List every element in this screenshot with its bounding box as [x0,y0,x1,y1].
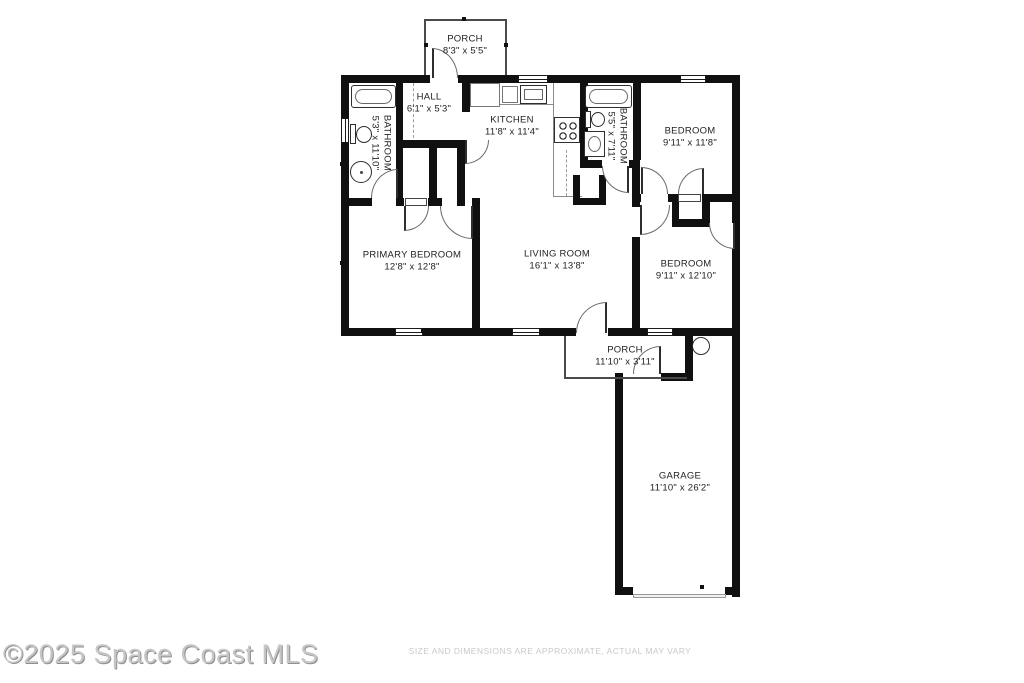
dimension-tick [543,329,547,333]
room-dims: 5'5" x 7'11" [604,108,616,164]
wall [429,148,437,198]
bathtub-icon [585,85,632,108]
dimension-tick [424,43,428,47]
wall [396,198,404,206]
dimension-tick [610,329,614,333]
wall [462,75,470,112]
dimension-tick [700,585,704,589]
room-label-garage: GARAGE 11'10" x 26'2" [650,471,710,496]
disclaimer-text: SIZE AND DIMENSIONS ARE APPROXIMATE, ACT… [409,646,692,656]
dimension-tick [421,329,425,333]
room-name: PRIMARY BEDROOM [363,250,461,262]
wall [673,328,740,336]
closet-door-slab [678,194,701,202]
cabinet-dashed-line [566,150,568,196]
window [518,75,548,83]
porch-outline [564,377,687,379]
room-name: PORCH [443,34,487,46]
bathtub-icon [351,85,396,108]
door-swing-bathroom-left [371,169,398,198]
dimension-tick [597,77,601,81]
room-dims: 11'8" x 11'4" [485,127,539,139]
room-dims: 16'1" x 13'8" [524,261,590,273]
wall [615,587,633,595]
porch-outline [505,19,507,75]
room-name: HALL [407,92,451,104]
wall [341,328,395,336]
wall [341,75,430,83]
door-swing-hall-closet [465,140,489,164]
wall [633,194,641,202]
room-label-bedroom-top-right: BEDROOM 9'11" x 11'8" [663,126,717,151]
dimension-tick [504,43,508,47]
kitchen-sink-icon [520,85,547,104]
porch-outline [424,19,426,75]
dimension-tick [651,77,655,81]
room-name: BEDROOM [663,126,717,138]
garage-door [633,594,726,598]
room-label-primary-bedroom: PRIMARY BEDROOM 12'8" x 12'8" [363,250,461,275]
room-dims: 6'1" x 5'3" [407,104,451,116]
dimension-tick [472,263,476,267]
window [647,328,673,336]
room-label-bedroom-bottom-right: BEDROOM 9'11" x 12'10" [656,259,716,284]
room-name: GARAGE [650,471,710,483]
dimension-tick [369,77,373,81]
room-dims: 9'11" x 11'8" [663,138,717,150]
window [512,328,540,336]
room-name: PORCH [595,345,654,357]
wall [403,140,465,148]
room-dims: 11'10" x 3'11" [595,357,654,369]
room-dims: 12'8" x 12'8" [363,262,461,274]
wall [672,219,710,227]
closet-door-slab [405,198,427,206]
wall [548,75,680,83]
window [395,328,423,336]
wall [706,75,740,83]
wall [341,143,349,336]
floor-plan-canvas: PORCH 8'3" x 5'5" HALL 6'1" x 5'3" KITCH… [0,0,1024,683]
room-name: KITCHEN [485,115,539,127]
wall [702,194,740,202]
wall [428,198,442,206]
door-swing-bedroom-top-closet [678,168,704,194]
wall [732,83,740,328]
wall [457,140,465,206]
stove-icon [554,117,580,143]
wall [633,83,641,160]
window [680,75,706,83]
wall [615,373,623,595]
door-swing-bedroom-bottom-closet [709,223,735,249]
room-dims: 9'11" x 12'10" [656,271,716,283]
room-label-hall: HALL 6'1" x 5'3" [407,92,451,117]
room-dims: 8'3" x 5'5" [443,46,487,58]
room-label-porch-top: PORCH 8'3" x 5'5" [443,34,487,59]
door-swing-bathroom-middle [602,166,629,193]
dimension-tick [340,261,344,265]
room-dims: 5'3" x 11'10" [368,115,380,171]
room-name: LIVING ROOM [524,249,590,261]
mls-watermark: ©2025 Space Coast MLS [3,639,319,670]
door-swing-primary-closet [404,206,429,231]
room-label-bathroom-left: BATHROOM 5'3" x 11'10" [368,115,393,171]
wall [349,198,372,206]
door-swing-primary-entry [440,206,473,239]
window [341,118,349,143]
room-name: BATHROOM [380,115,392,171]
wall [732,328,740,597]
water-heater-icon [692,337,710,355]
room-label-kitchen: KITCHEN 11'8" x 11'4" [485,115,539,140]
room-name: BEDROOM [656,259,716,271]
door-swing-bedroom-bottom [640,205,670,235]
wall [668,194,678,202]
room-label-bathroom-middle: BATHROOM 5'5" x 7'11" [604,108,629,164]
wall [632,237,640,328]
dimension-tick [735,135,739,139]
dimension-tick [735,272,739,276]
room-label-living-room: LIVING ROOM 16'1" x 13'8" [524,249,590,274]
room-name: BATHROOM [616,108,628,164]
wall [341,83,349,118]
door-swing-rear-porch [576,302,607,333]
dimension-tick [340,162,344,166]
room-dims: 11'10" x 26'2" [650,483,710,495]
dishwasher-icon [502,86,518,103]
wall [423,328,512,336]
door-swing-bedroom-top [641,167,668,194]
porch-outline [564,336,566,379]
sink-icon [584,131,605,157]
room-label-porch-bottom: PORCH 11'10" x 3'11" [595,345,654,370]
dimension-tick [735,476,739,480]
wall [588,160,602,168]
dimension-tick [462,17,466,21]
wall [725,587,740,595]
pantry-cabinet [470,83,500,107]
dimension-tick [616,476,620,480]
